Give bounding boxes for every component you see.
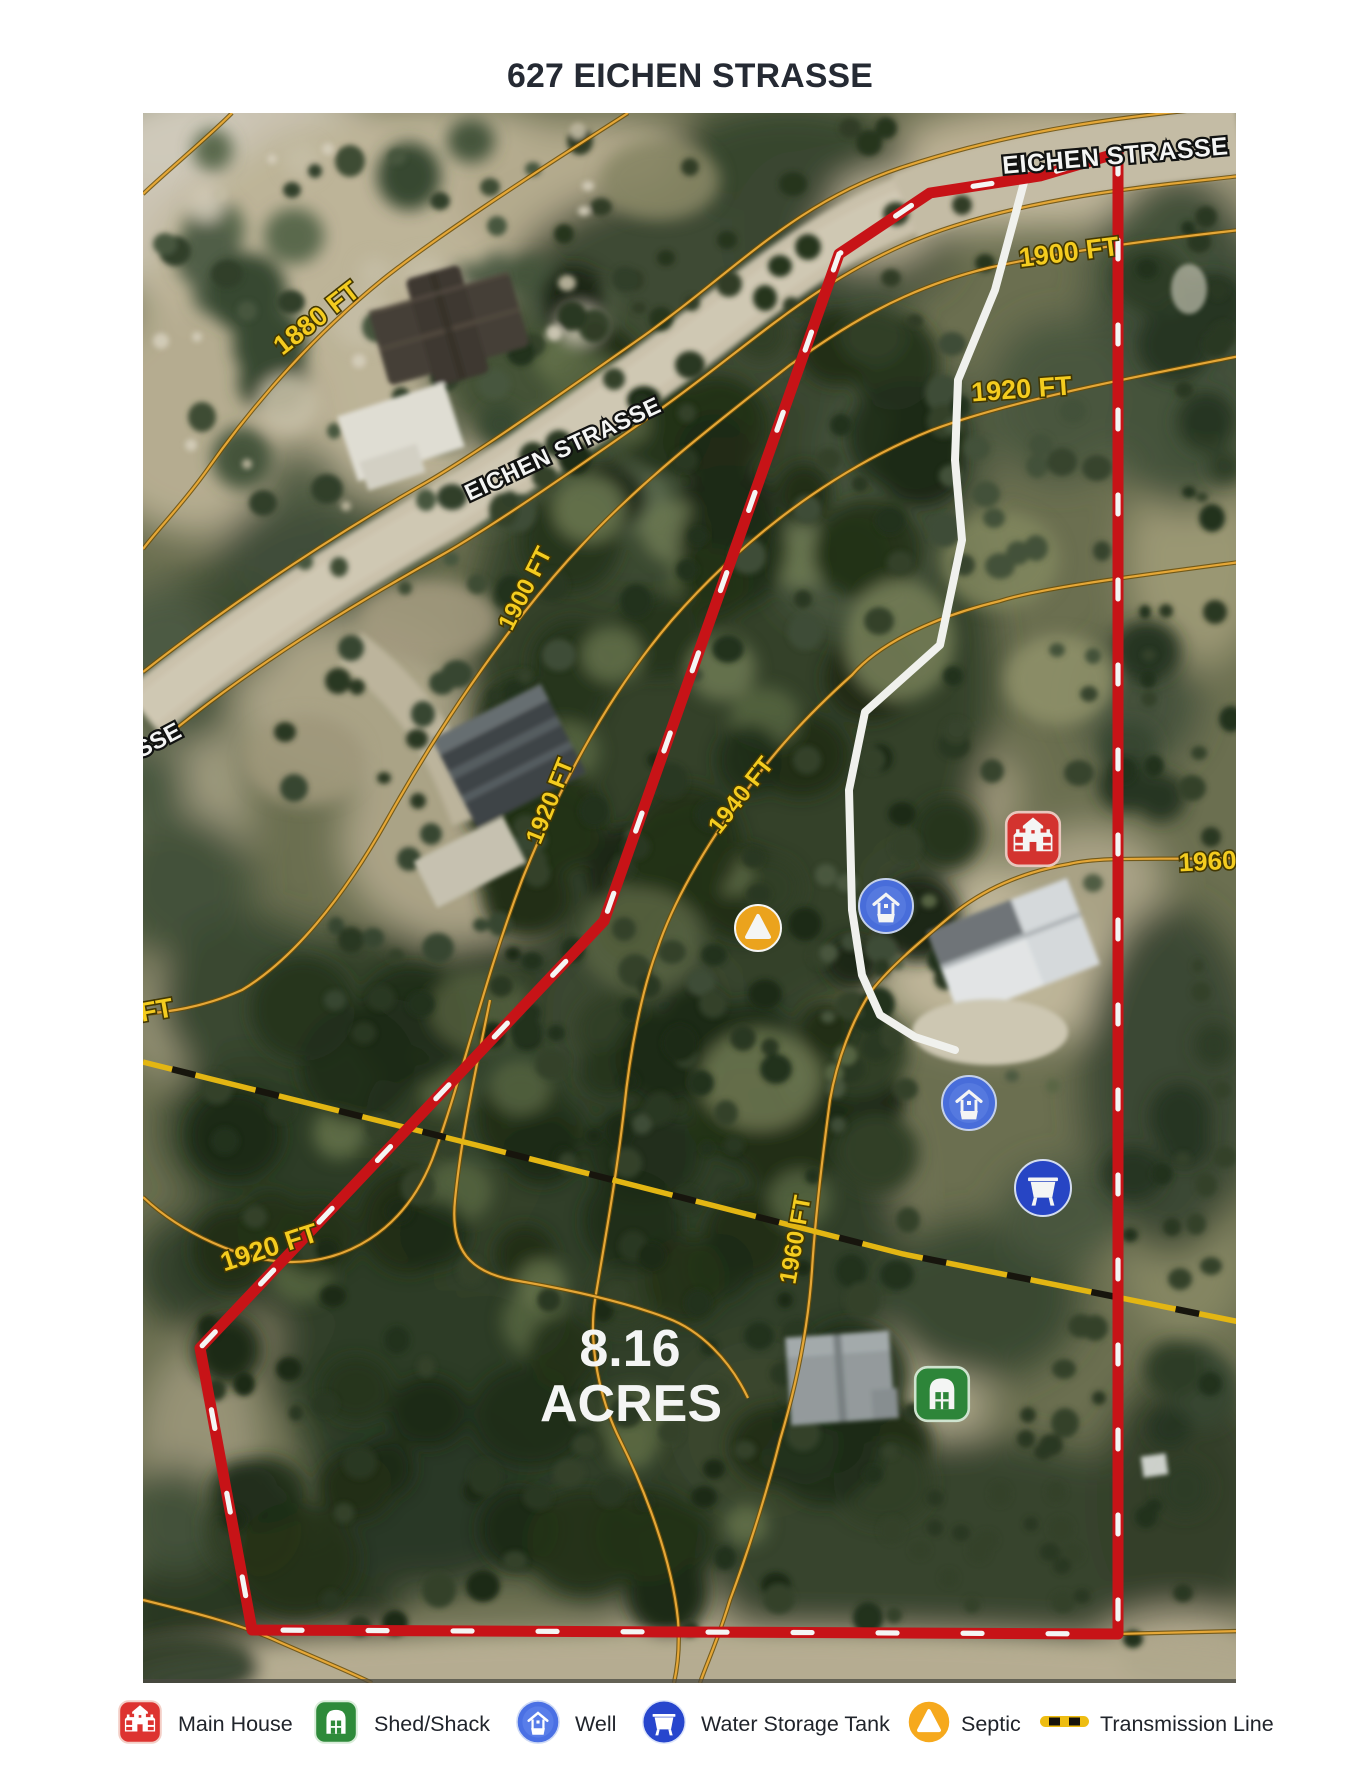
svg-text:Transmission Line: Transmission Line xyxy=(1100,1712,1274,1736)
svg-text:Shed/Shack: Shed/Shack xyxy=(374,1712,490,1736)
svg-text:Well: Well xyxy=(575,1712,616,1736)
svg-text:627 EICHEN STRASSE: 627 EICHEN STRASSE xyxy=(507,57,873,95)
svg-text:Water Storage Tank: Water Storage Tank xyxy=(701,1712,890,1736)
svg-text:Main House: Main House xyxy=(178,1712,293,1736)
svg-text:Septic: Septic xyxy=(961,1712,1021,1736)
